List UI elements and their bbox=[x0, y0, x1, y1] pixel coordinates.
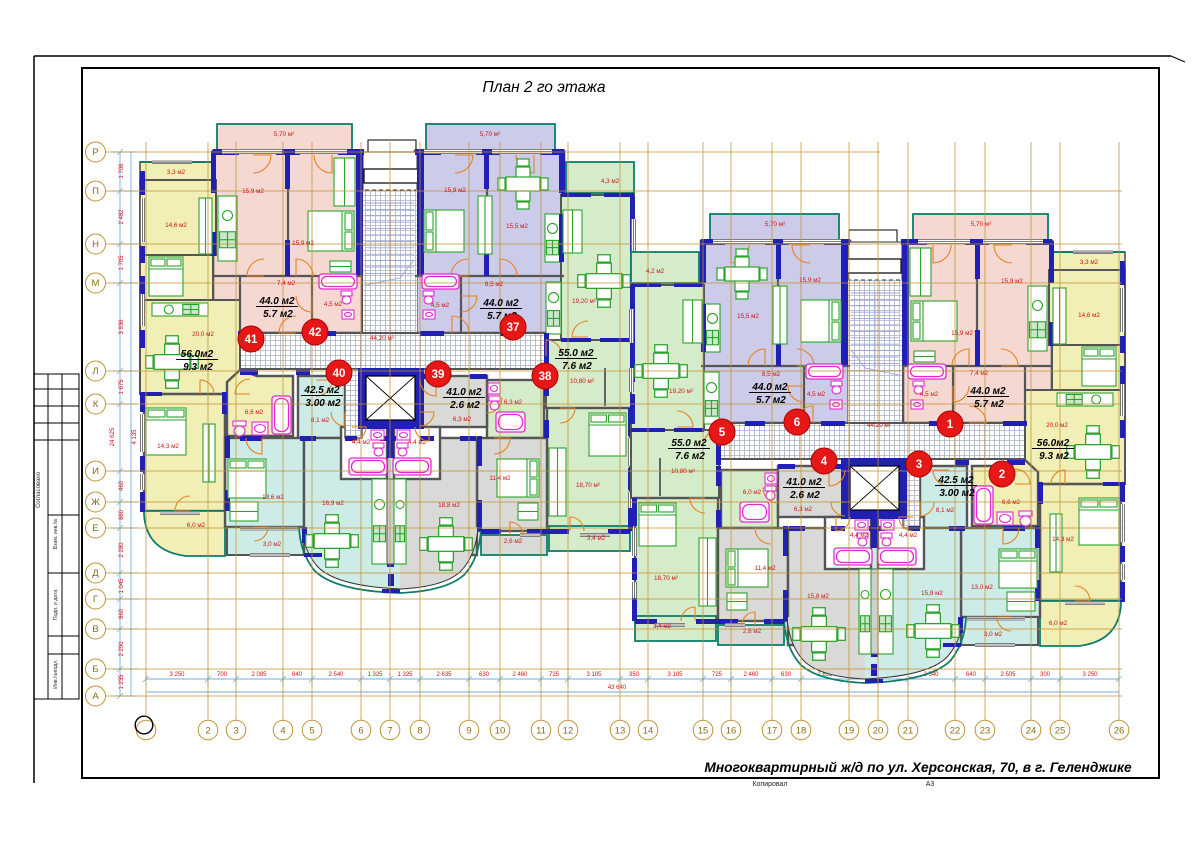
svg-text:725: 725 bbox=[549, 672, 560, 678]
svg-text:19: 19 bbox=[844, 725, 855, 736]
svg-text:2 280: 2 280 bbox=[119, 542, 125, 558]
svg-text:Копировал: Копировал bbox=[752, 781, 787, 788]
svg-text:2 635: 2 635 bbox=[436, 672, 452, 678]
svg-text:18,70 м²: 18,70 м² bbox=[576, 482, 600, 489]
svg-text:3 105: 3 105 bbox=[586, 672, 602, 678]
svg-text:8,1 м2: 8,1 м2 bbox=[936, 507, 955, 514]
svg-text:630: 630 bbox=[479, 672, 490, 678]
svg-text:55.0 м2: 55.0 м2 bbox=[671, 438, 707, 449]
svg-text:19,20 м²: 19,20 м² bbox=[572, 298, 596, 305]
svg-text:6: 6 bbox=[358, 725, 363, 736]
svg-text:640: 640 bbox=[292, 672, 303, 678]
svg-text:3,0 м2: 3,0 м2 bbox=[984, 631, 1003, 638]
svg-text:18,8 м2: 18,8 м2 bbox=[438, 502, 460, 509]
svg-text:П: П bbox=[92, 186, 99, 197]
svg-text:2.6 м2: 2.6 м2 bbox=[789, 490, 820, 501]
svg-text:3,0 м2: 3,0 м2 bbox=[263, 541, 282, 548]
svg-text:11,4 м2: 11,4 м2 bbox=[754, 565, 776, 572]
svg-text:15,9 м2: 15,9 м2 bbox=[1001, 278, 1023, 285]
svg-text:5.7 м2: 5.7 м2 bbox=[263, 309, 293, 320]
svg-text:2 290: 2 290 bbox=[119, 641, 125, 657]
svg-text:860: 860 bbox=[119, 608, 125, 619]
svg-text:Инв.№подл.: Инв.№подл. bbox=[53, 659, 59, 688]
svg-text:5: 5 bbox=[719, 427, 726, 439]
svg-text:460: 460 bbox=[119, 480, 125, 491]
svg-text:44.0 м2: 44.0 м2 bbox=[969, 386, 1006, 397]
svg-text:7,4 м2: 7,4 м2 bbox=[970, 370, 989, 377]
svg-text:2,6 м2: 2,6 м2 bbox=[743, 628, 762, 635]
svg-text:4,4 м2: 4,4 м2 bbox=[899, 532, 918, 539]
svg-text:6,0 м2: 6,0 м2 bbox=[187, 522, 206, 529]
svg-text:14,3 м2: 14,3 м2 bbox=[1052, 536, 1074, 543]
svg-text:4,3 м2: 4,3 м2 bbox=[601, 178, 620, 185]
svg-text:К: К bbox=[93, 399, 99, 410]
svg-text:42.5 м2: 42.5 м2 bbox=[303, 385, 340, 396]
svg-text:Д: Д bbox=[92, 568, 99, 579]
svg-text:15,9 м2: 15,9 м2 bbox=[444, 187, 466, 194]
svg-text:13,0 м2: 13,0 м2 bbox=[971, 584, 993, 591]
svg-text:Подп. и дата: Подп. и дата bbox=[53, 590, 59, 621]
svg-text:Г: Г bbox=[93, 594, 98, 605]
svg-text:3 250: 3 250 bbox=[1082, 672, 1098, 678]
svg-text:39: 39 bbox=[432, 369, 445, 381]
svg-text:3,4 м2: 3,4 м2 bbox=[653, 623, 672, 630]
svg-text:15,9 м2: 15,9 м2 bbox=[292, 240, 314, 247]
svg-text:1 325: 1 325 bbox=[367, 672, 383, 678]
svg-text:6,3 м2: 6,3 м2 bbox=[453, 416, 472, 423]
svg-text:6,0 м2: 6,0 м2 bbox=[1049, 620, 1068, 627]
svg-text:3: 3 bbox=[916, 459, 922, 471]
svg-text:6,3 м2: 6,3 м2 bbox=[794, 506, 813, 513]
svg-text:И: И bbox=[92, 466, 99, 477]
svg-text:5,70 м²: 5,70 м² bbox=[765, 221, 785, 228]
svg-text:10: 10 bbox=[495, 725, 506, 736]
svg-text:725: 725 bbox=[712, 672, 723, 678]
svg-text:8,1 м2: 8,1 м2 bbox=[311, 417, 330, 424]
svg-text:1: 1 bbox=[947, 419, 954, 431]
svg-text:13: 13 bbox=[615, 725, 626, 736]
svg-text:9.3 м2: 9.3 м2 bbox=[1039, 451, 1069, 462]
svg-text:2 482: 2 482 bbox=[119, 209, 125, 225]
svg-text:300: 300 bbox=[1040, 672, 1051, 678]
svg-text:42: 42 bbox=[309, 327, 322, 339]
svg-text:14: 14 bbox=[643, 725, 654, 736]
svg-text:8,5 м2: 8,5 м2 bbox=[762, 371, 781, 378]
svg-text:2 460: 2 460 bbox=[743, 672, 759, 678]
svg-text:12: 12 bbox=[563, 725, 574, 736]
svg-text:15,5 м2: 15,5 м2 bbox=[506, 223, 528, 230]
svg-text:5.7 м2: 5.7 м2 bbox=[974, 399, 1004, 410]
svg-text:4,5 м2: 4,5 м2 bbox=[324, 301, 343, 308]
svg-text:1 706: 1 706 bbox=[119, 163, 125, 179]
svg-text:Ж: Ж bbox=[91, 497, 100, 508]
svg-text:44,20 м²: 44,20 м² bbox=[370, 335, 394, 342]
svg-text:4,4 м2: 4,4 м2 bbox=[408, 439, 427, 446]
svg-text:6,3 м2: 6,3 м2 bbox=[504, 399, 523, 406]
svg-text:15,9 м2: 15,9 м2 bbox=[951, 330, 973, 337]
svg-text:Многоквартирный ж/д по ул. Хер: Многоквартирный ж/д по ул. Херсонская, 7… bbox=[704, 760, 1132, 775]
svg-text:Согласовано: Согласовано bbox=[36, 471, 42, 508]
svg-text:16,9 м2: 16,9 м2 bbox=[322, 500, 344, 507]
svg-text:3 936: 3 936 bbox=[119, 319, 125, 335]
svg-text:19,20 м²: 19,20 м² bbox=[669, 388, 693, 395]
svg-text:6,6 м2: 6,6 м2 bbox=[1002, 499, 1021, 506]
svg-text:3,4 м2: 3,4 м2 bbox=[587, 535, 606, 542]
svg-text:24: 24 bbox=[1026, 725, 1037, 736]
svg-text:10,80 м²: 10,80 м² bbox=[671, 468, 695, 475]
svg-text:18,70 м²: 18,70 м² bbox=[654, 575, 678, 582]
svg-text:5.7 м2: 5.7 м2 bbox=[756, 395, 786, 406]
svg-text:44.0 м2: 44.0 м2 bbox=[482, 298, 519, 309]
svg-text:15,9 м2: 15,9 м2 bbox=[921, 590, 943, 597]
svg-text:860: 860 bbox=[119, 509, 125, 520]
svg-text:56.0м2: 56.0м2 bbox=[181, 349, 214, 360]
svg-text:21: 21 bbox=[903, 725, 914, 736]
svg-text:4,2 м2: 4,2 м2 bbox=[646, 268, 665, 275]
svg-text:42.5 м2: 42.5 м2 bbox=[937, 475, 974, 486]
svg-text:18: 18 bbox=[796, 725, 807, 736]
svg-text:4 135: 4 135 bbox=[132, 429, 138, 445]
svg-text:1 325: 1 325 bbox=[397, 672, 413, 678]
svg-text:9: 9 bbox=[466, 725, 471, 736]
svg-text:Л: Л bbox=[92, 366, 98, 377]
svg-text:В: В bbox=[92, 624, 98, 635]
svg-text:5,70 м²: 5,70 м² bbox=[480, 131, 500, 138]
svg-text:7,4 м2: 7,4 м2 bbox=[277, 280, 296, 287]
svg-text:1 235: 1 235 bbox=[119, 674, 125, 690]
svg-text:А: А bbox=[92, 691, 99, 702]
svg-text:3 250: 3 250 bbox=[169, 672, 185, 678]
svg-text:3,3 м2: 3,3 м2 bbox=[1080, 259, 1099, 266]
svg-text:15,9 м2: 15,9 м2 bbox=[242, 188, 264, 195]
svg-text:630: 630 bbox=[781, 672, 792, 678]
svg-text:4,5 м2: 4,5 м2 bbox=[431, 302, 450, 309]
svg-text:Р: Р bbox=[92, 147, 98, 158]
svg-text:26: 26 bbox=[1114, 725, 1125, 736]
svg-text:6: 6 bbox=[794, 417, 800, 429]
svg-text:2,6 м2: 2,6 м2 bbox=[504, 538, 523, 545]
svg-text:1 045: 1 045 bbox=[119, 578, 125, 594]
svg-text:3 105: 3 105 bbox=[667, 672, 683, 678]
svg-text:17: 17 bbox=[767, 725, 778, 736]
svg-text:24 625: 24 625 bbox=[110, 427, 116, 446]
svg-text:План 2 го этажа: План 2 го этажа bbox=[482, 79, 605, 96]
svg-text:37: 37 bbox=[507, 322, 520, 334]
svg-text:350: 350 bbox=[629, 672, 640, 678]
svg-text:15: 15 bbox=[698, 725, 709, 736]
svg-text:5: 5 bbox=[309, 725, 314, 736]
svg-text:20,0 м2: 20,0 м2 bbox=[192, 331, 214, 338]
svg-text:2 505: 2 505 bbox=[1000, 672, 1016, 678]
svg-text:11: 11 bbox=[536, 725, 546, 736]
svg-text:3,3 м2: 3,3 м2 bbox=[167, 169, 186, 176]
svg-text:55.0 м2: 55.0 м2 bbox=[558, 348, 594, 359]
svg-text:5,70 м²: 5,70 м² bbox=[274, 131, 294, 138]
svg-text:2: 2 bbox=[999, 469, 1005, 481]
svg-text:22: 22 bbox=[950, 725, 961, 736]
svg-text:14,3 м2: 14,3 м2 bbox=[157, 443, 179, 450]
svg-text:40: 40 bbox=[333, 368, 346, 380]
svg-text:4,5 м2: 4,5 м2 bbox=[920, 391, 939, 398]
svg-text:2.6 м2: 2.6 м2 bbox=[449, 400, 480, 411]
svg-text:Е: Е bbox=[92, 523, 98, 534]
svg-text:23: 23 bbox=[980, 725, 991, 736]
svg-text:43 640: 43 640 bbox=[608, 685, 627, 691]
svg-text:4,4 м2: 4,4 м2 bbox=[850, 532, 869, 539]
svg-text:10,80 м²: 10,80 м² bbox=[570, 378, 594, 385]
svg-text:14,6 м2: 14,6 м2 bbox=[1078, 312, 1100, 319]
svg-text:8,5 м2: 8,5 м2 bbox=[485, 281, 504, 288]
svg-text:20,0 м2: 20,0 м2 bbox=[1046, 422, 1068, 429]
svg-text:2: 2 bbox=[205, 725, 210, 736]
svg-text:4,4 м2: 4,4 м2 bbox=[352, 439, 371, 446]
svg-text:41: 41 bbox=[245, 334, 258, 346]
svg-text:4,5 м2: 4,5 м2 bbox=[807, 391, 826, 398]
svg-text:4: 4 bbox=[280, 725, 285, 736]
svg-text:А3: А3 bbox=[926, 781, 935, 788]
svg-text:8: 8 bbox=[417, 725, 422, 736]
svg-text:44.0 м2: 44.0 м2 bbox=[751, 382, 788, 393]
svg-text:2 540: 2 540 bbox=[328, 672, 344, 678]
svg-text:3: 3 bbox=[233, 725, 238, 736]
svg-text:6,6 м2: 6,6 м2 bbox=[245, 409, 264, 416]
svg-text:7.6 м2: 7.6 м2 bbox=[562, 361, 592, 372]
svg-text:7: 7 bbox=[387, 725, 392, 736]
svg-text:44.0 м2: 44.0 м2 bbox=[258, 296, 295, 307]
svg-text:3.00 м2: 3.00 м2 bbox=[305, 398, 341, 409]
svg-text:41.0 м2: 41.0 м2 bbox=[785, 477, 822, 488]
svg-text:15,9 м2: 15,9 м2 bbox=[799, 277, 821, 284]
svg-text:Б: Б bbox=[92, 664, 98, 675]
svg-text:14,6 м2: 14,6 м2 bbox=[165, 222, 187, 229]
svg-text:15,5 м2: 15,5 м2 bbox=[737, 313, 759, 320]
svg-text:11,4 м2: 11,4 м2 bbox=[489, 475, 511, 482]
svg-text:700: 700 bbox=[217, 672, 228, 678]
svg-text:15,8 м2: 15,8 м2 bbox=[807, 593, 829, 600]
svg-text:5,70 м²: 5,70 м² bbox=[971, 221, 991, 228]
svg-text:38: 38 bbox=[539, 371, 552, 383]
svg-text:56.0м2: 56.0м2 bbox=[1037, 438, 1070, 449]
svg-text:2 085: 2 085 bbox=[251, 672, 267, 678]
svg-text:640: 640 bbox=[966, 672, 977, 678]
svg-text:44,20 м²: 44,20 м² bbox=[867, 422, 891, 429]
svg-text:41.0 м2: 41.0 м2 bbox=[445, 387, 482, 398]
svg-text:3.00 м2: 3.00 м2 bbox=[939, 488, 975, 499]
svg-text:Н: Н bbox=[92, 239, 99, 250]
svg-text:16: 16 bbox=[726, 725, 737, 736]
svg-text:2 460: 2 460 bbox=[512, 672, 528, 678]
svg-text:20: 20 bbox=[873, 725, 884, 736]
svg-text:4: 4 bbox=[821, 456, 828, 468]
svg-text:1 705: 1 705 bbox=[119, 255, 125, 271]
svg-text:Взам. инв.№: Взам. инв.№ bbox=[53, 518, 59, 549]
svg-text:7.6 м2: 7.6 м2 bbox=[675, 451, 705, 462]
svg-text:М: М bbox=[92, 278, 100, 289]
svg-text:13,6 м2: 13,6 м2 bbox=[262, 494, 284, 501]
svg-text:1 675: 1 675 bbox=[119, 379, 125, 395]
svg-text:9.3 м2: 9.3 м2 bbox=[183, 362, 213, 373]
svg-text:6,0 м2: 6,0 м2 bbox=[743, 489, 762, 496]
svg-text:25: 25 bbox=[1055, 725, 1066, 736]
